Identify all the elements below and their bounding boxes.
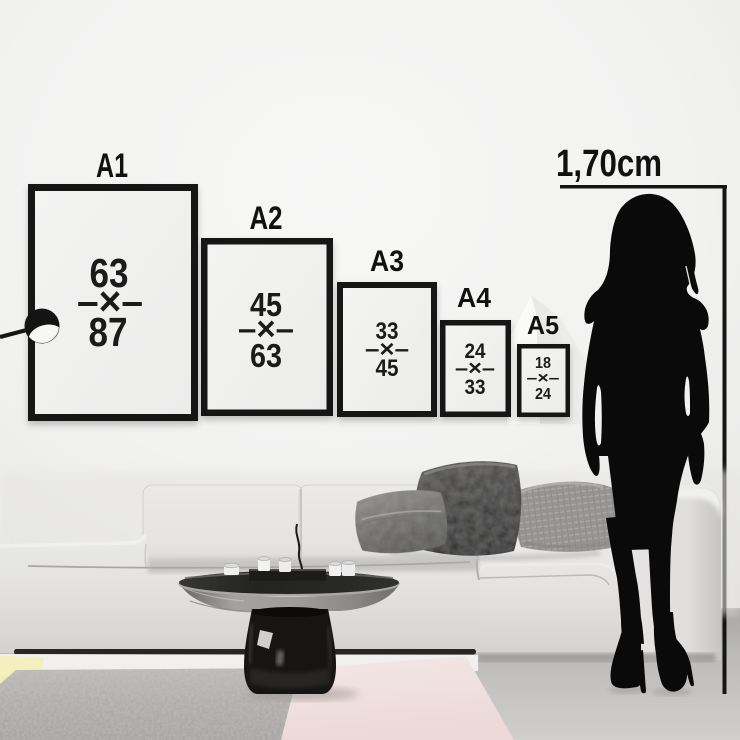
svg-text:A4: A4 <box>457 282 491 313</box>
svg-text:33: 33 <box>465 376 486 399</box>
svg-text:A5: A5 <box>527 310 559 340</box>
svg-text:1,70cm: 1,70cm <box>556 143 662 185</box>
svg-text:A1: A1 <box>96 147 128 185</box>
svg-text:–×–: –×– <box>527 370 560 387</box>
svg-text:A3: A3 <box>370 245 404 278</box>
svg-text:63: 63 <box>250 337 282 374</box>
svg-text:A2: A2 <box>250 200 283 236</box>
svg-text:24: 24 <box>535 386 551 403</box>
svg-text:45: 45 <box>376 355 399 382</box>
svg-text:87: 87 <box>89 309 128 355</box>
